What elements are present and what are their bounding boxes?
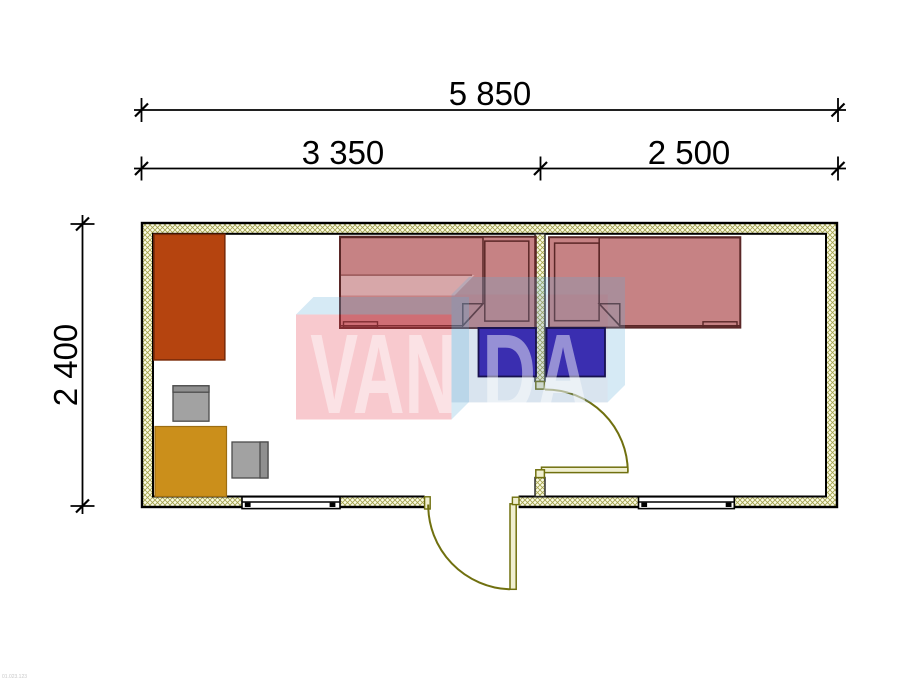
svg-text:3 350: 3 350 (302, 134, 385, 171)
svg-text:2 500: 2 500 (648, 134, 731, 171)
svg-text:2 400: 2 400 (47, 324, 84, 407)
svg-text:DA: DA (482, 311, 590, 437)
svg-text:5 850: 5 850 (449, 75, 532, 112)
svg-text:01.023.123: 01.023.123 (2, 674, 27, 680)
svg-text:VAN: VAN (310, 312, 456, 439)
